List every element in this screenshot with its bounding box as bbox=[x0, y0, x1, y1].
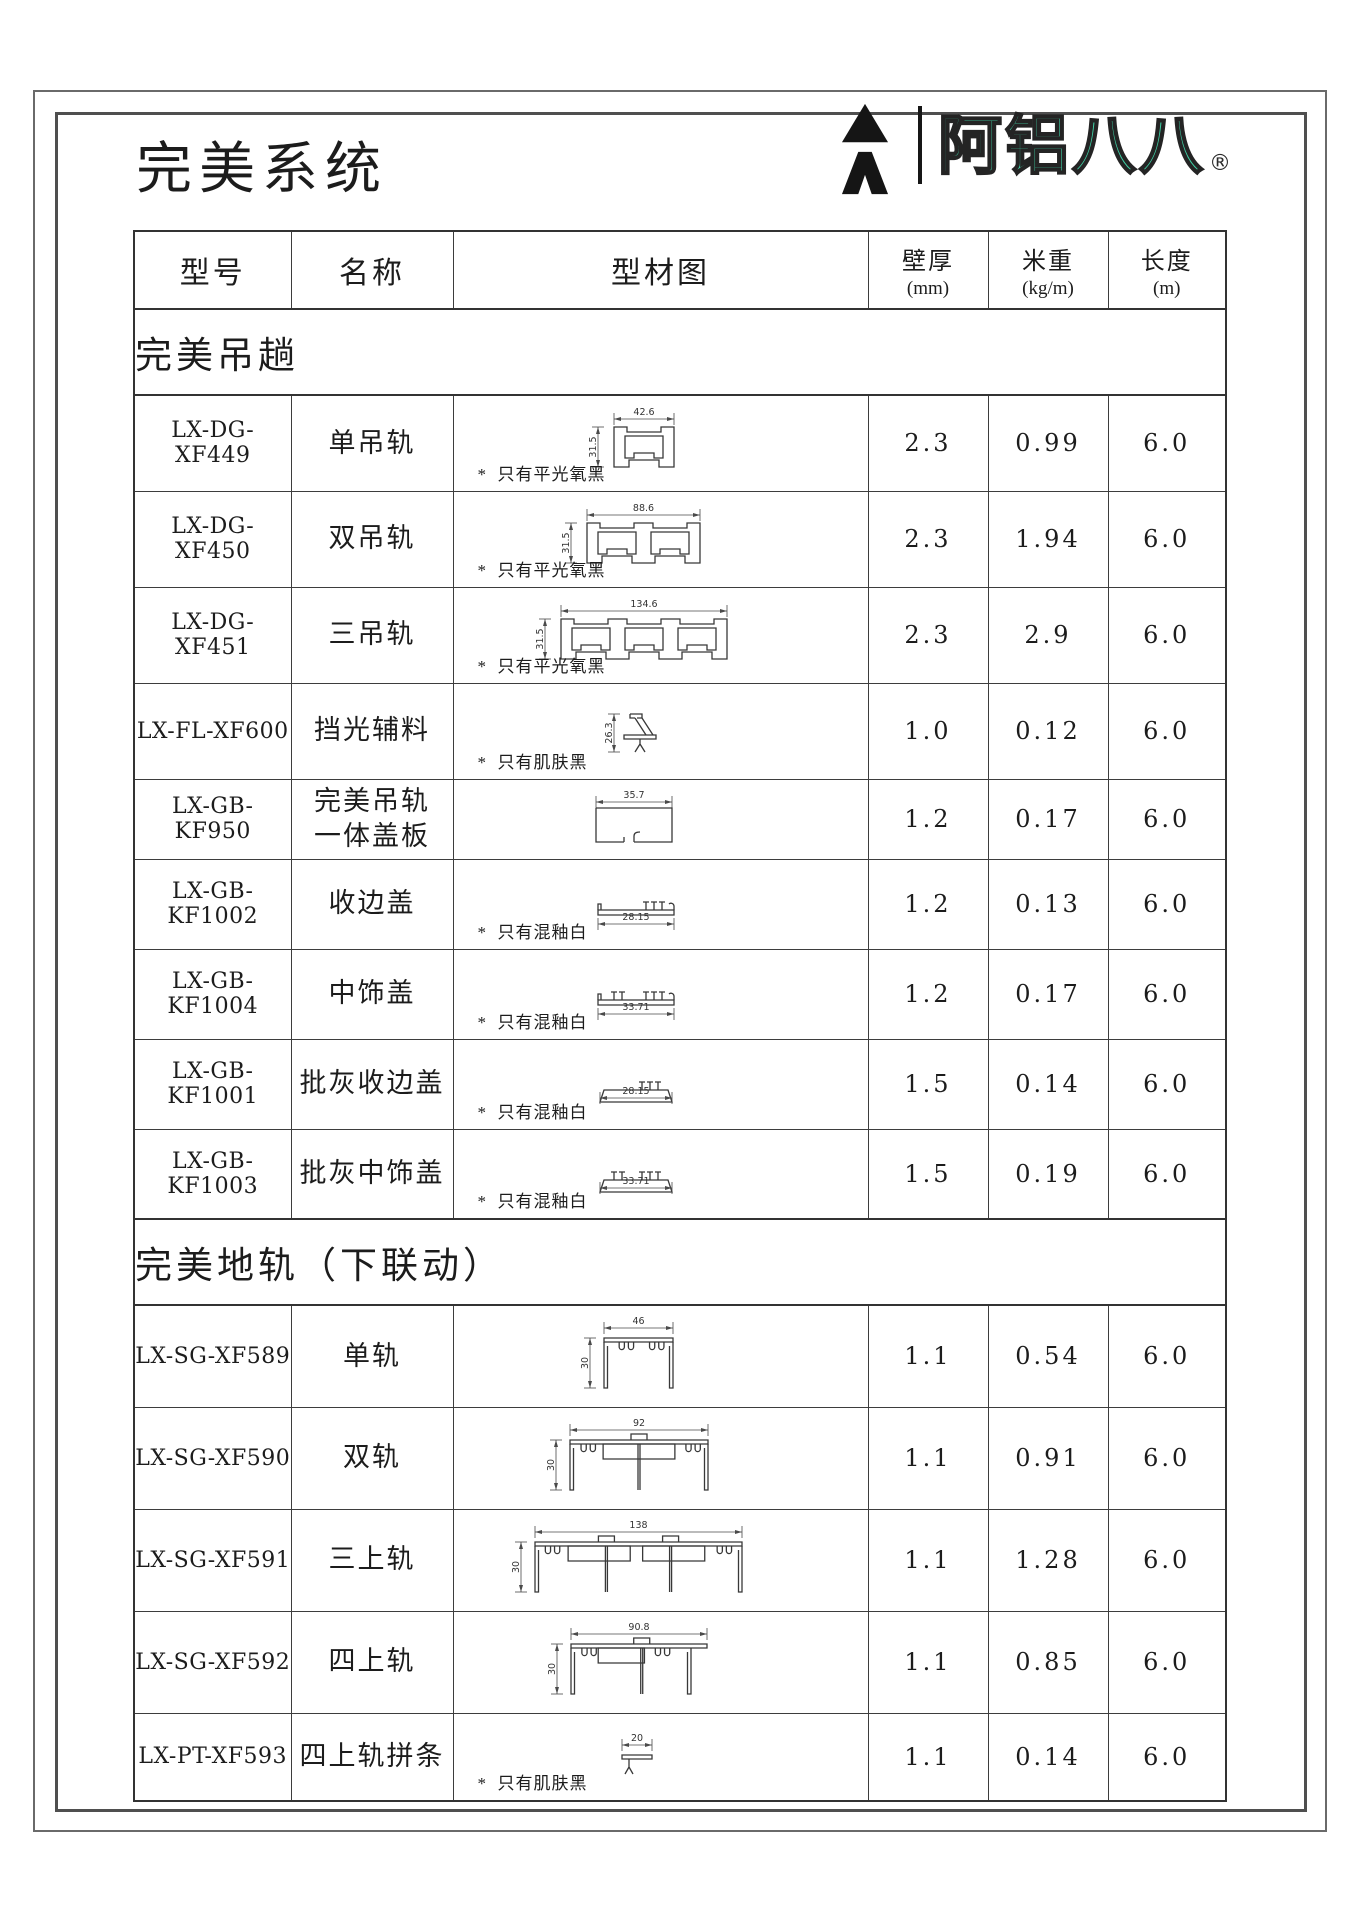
model-cell: LX-DG-XF451 bbox=[134, 587, 291, 683]
diagram-cell: 28.15* 只有混釉白 bbox=[453, 1039, 868, 1129]
weight-cell: 1.28 bbox=[988, 1509, 1108, 1611]
section-row: 完美吊趟 bbox=[134, 309, 1226, 395]
svg-text:30: 30 bbox=[546, 1459, 557, 1471]
length-cell: 6.0 bbox=[1108, 491, 1226, 587]
wall-cell: 1.2 bbox=[868, 949, 988, 1039]
model-cell: LX-GB-KF1001 bbox=[134, 1039, 291, 1129]
diagram-note: * 只有肌肤黑 bbox=[478, 748, 588, 773]
logo-brand: 阿铝八八 bbox=[938, 110, 1206, 182]
diagram-cell: 26.3* 只有肌肤黑 bbox=[453, 683, 868, 779]
model-cell: LX-PT-XF593 bbox=[134, 1713, 291, 1801]
svg-text:92: 92 bbox=[632, 1418, 644, 1429]
profile-diagram: 4630 bbox=[426, 1316, 840, 1396]
diagram-cell: 33.71* 只有混釉白 bbox=[453, 949, 868, 1039]
length-cell: 6.0 bbox=[1108, 1305, 1226, 1407]
length-cell: 6.0 bbox=[1108, 949, 1226, 1039]
wall-cell: 1.1 bbox=[868, 1305, 988, 1407]
length-cell: 6.0 bbox=[1108, 779, 1226, 859]
model-cell: LX-DG-XF449 bbox=[134, 395, 291, 491]
svg-text:42.6: 42.6 bbox=[633, 407, 654, 418]
wall-cell: 1.1 bbox=[868, 1509, 988, 1611]
table-row: LX-SG-XF591三上轨138301.11.286.0 bbox=[134, 1509, 1226, 1611]
model-cell: LX-SG-XF591 bbox=[134, 1509, 291, 1611]
spec-table: 型号 名称 型材图 壁厚(mm) 米重(kg/m) 长度(m) 完美吊趟LX-D… bbox=[133, 230, 1227, 1802]
svg-text:30: 30 bbox=[580, 1357, 591, 1369]
table-row: LX-FL-XF600挡光辅料26.3* 只有肌肤黑1.00.126.0 bbox=[134, 683, 1226, 779]
weight-cell: 0.54 bbox=[988, 1305, 1108, 1407]
col-header-model: 型号 bbox=[134, 231, 291, 309]
diagram-note: * 只有平光氧黑 bbox=[478, 460, 606, 485]
length-cell: 6.0 bbox=[1108, 1713, 1226, 1801]
diagram-cell: 88.631.5* 只有平光氧黑 bbox=[453, 491, 868, 587]
svg-text:20: 20 bbox=[630, 1733, 642, 1744]
model-cell: LX-DG-XF450 bbox=[134, 491, 291, 587]
svg-text:31.5: 31.5 bbox=[588, 437, 599, 458]
svg-text:31.5: 31.5 bbox=[561, 532, 572, 553]
weight-cell: 0.19 bbox=[988, 1129, 1108, 1219]
weight-cell: 0.13 bbox=[988, 859, 1108, 949]
model-cell: LX-GB-KF1002 bbox=[134, 859, 291, 949]
svg-text:28.15: 28.15 bbox=[622, 912, 649, 923]
length-cell: 6.0 bbox=[1108, 1611, 1226, 1713]
model-cell: LX-SG-XF589 bbox=[134, 1305, 291, 1407]
col-header-diagram: 型材图 bbox=[453, 231, 868, 309]
diagram-cell: 20* 只有肌肤黑 bbox=[453, 1713, 868, 1801]
wall-cell: 1.2 bbox=[868, 779, 988, 859]
diagram-note: * 只有混釉白 bbox=[478, 918, 588, 943]
length-cell: 6.0 bbox=[1108, 1509, 1226, 1611]
weight-cell: 0.17 bbox=[988, 949, 1108, 1039]
model-cell: LX-GB-KF950 bbox=[134, 779, 291, 859]
svg-text:30: 30 bbox=[511, 1561, 522, 1573]
diagram-cell: 35.7 bbox=[453, 779, 868, 859]
weight-cell: 0.99 bbox=[988, 395, 1108, 491]
svg-text:88.6: 88.6 bbox=[633, 503, 654, 514]
diagram-cell: 134.631.5* 只有平光氧黑 bbox=[453, 587, 868, 683]
logo-divider bbox=[918, 106, 922, 184]
svg-text:138: 138 bbox=[629, 1520, 647, 1531]
brand-logo: 阿铝八八® bbox=[826, 100, 1228, 196]
table-row: LX-SG-XF592四上轨90.8301.10.856.0 bbox=[134, 1611, 1226, 1713]
table-row: LX-GB-KF1002收边盖28.15* 只有混釉白1.20.136.0 bbox=[134, 859, 1226, 949]
length-cell: 6.0 bbox=[1108, 859, 1226, 949]
col-header-name: 名称 bbox=[291, 231, 453, 309]
table-row: LX-PT-XF593四上轨拼条20* 只有肌肤黑1.10.146.0 bbox=[134, 1713, 1226, 1801]
weight-cell: 0.17 bbox=[988, 779, 1108, 859]
wall-cell: 1.1 bbox=[868, 1611, 988, 1713]
diagram-cell: 28.15* 只有混釉白 bbox=[453, 859, 868, 949]
profile-diagram: 9230 bbox=[426, 1418, 840, 1498]
wall-cell: 1.1 bbox=[868, 1713, 988, 1801]
wall-cell: 1.1 bbox=[868, 1407, 988, 1509]
profile-diagram: 90.830 bbox=[426, 1622, 840, 1702]
length-cell: 6.0 bbox=[1108, 587, 1226, 683]
model-cell: LX-GB-KF1004 bbox=[134, 949, 291, 1039]
svg-text:90.8: 90.8 bbox=[628, 1622, 649, 1633]
wall-cell: 1.2 bbox=[868, 859, 988, 949]
svg-text:31.5: 31.5 bbox=[535, 628, 546, 649]
diagram-cell: 13830 bbox=[453, 1509, 868, 1611]
diagram-cell: 9230 bbox=[453, 1407, 868, 1509]
profile-diagram: 13830 bbox=[426, 1520, 840, 1600]
diagram-note: * 只有肌肤黑 bbox=[478, 1769, 588, 1794]
length-cell: 6.0 bbox=[1108, 1039, 1226, 1129]
weight-cell: 0.14 bbox=[988, 1039, 1108, 1129]
svg-text:46: 46 bbox=[632, 1316, 644, 1327]
table-header-row: 型号 名称 型材图 壁厚(mm) 米重(kg/m) 长度(m) bbox=[134, 231, 1226, 309]
diagram-note: * 只有混釉白 bbox=[478, 1098, 588, 1123]
svg-text:30: 30 bbox=[547, 1663, 558, 1675]
length-cell: 6.0 bbox=[1108, 1407, 1226, 1509]
wall-cell: 2.3 bbox=[868, 395, 988, 491]
diagram-cell: 4630 bbox=[453, 1305, 868, 1407]
table-row: LX-GB-KF950完美吊轨一体盖板35.71.20.176.0 bbox=[134, 779, 1226, 859]
weight-cell: 0.12 bbox=[988, 683, 1108, 779]
wall-cell: 1.0 bbox=[868, 683, 988, 779]
table-row: LX-DG-XF450双吊轨88.631.5* 只有平光氧黑2.31.946.0 bbox=[134, 491, 1226, 587]
length-cell: 6.0 bbox=[1108, 395, 1226, 491]
svg-text:26.3: 26.3 bbox=[604, 722, 615, 743]
table-row: LX-GB-KF1004中饰盖33.71* 只有混釉白1.20.176.0 bbox=[134, 949, 1226, 1039]
section-row: 完美地轨（下联动） bbox=[134, 1219, 1226, 1305]
registered-mark: ® bbox=[1209, 151, 1231, 176]
section-title: 完美地轨（下联动） bbox=[134, 1219, 1226, 1305]
table-row: LX-SG-XF589单轨46301.10.546.0 bbox=[134, 1305, 1226, 1407]
diagram-cell: 42.631.5* 只有平光氧黑 bbox=[453, 395, 868, 491]
weight-cell: 0.85 bbox=[988, 1611, 1108, 1713]
wall-cell: 1.5 bbox=[868, 1129, 988, 1219]
model-cell: LX-SG-XF592 bbox=[134, 1611, 291, 1713]
length-cell: 6.0 bbox=[1108, 1129, 1226, 1219]
table-row: LX-DG-XF451三吊轨134.631.5* 只有平光氧黑2.32.96.0 bbox=[134, 587, 1226, 683]
svg-text:33.71: 33.71 bbox=[622, 1002, 649, 1013]
logo-mark-icon bbox=[826, 100, 904, 196]
diagram-cell: 90.830 bbox=[453, 1611, 868, 1713]
svg-text:134.6: 134.6 bbox=[630, 599, 657, 610]
table-row: LX-GB-KF1003批灰中饰盖33.71* 只有混釉白1.50.196.0 bbox=[134, 1129, 1226, 1219]
diagram-note: * 只有平光氧黑 bbox=[478, 556, 606, 581]
wall-cell: 2.3 bbox=[868, 491, 988, 587]
page-title: 完美系统 bbox=[136, 124, 388, 205]
col-header-wall: 壁厚(mm) bbox=[868, 231, 988, 309]
weight-cell: 2.9 bbox=[988, 587, 1108, 683]
col-header-length: 长度(m) bbox=[1108, 231, 1226, 309]
table-row: LX-DG-XF449单吊轨42.631.5* 只有平光氧黑2.30.996.0 bbox=[134, 395, 1226, 491]
table-row: LX-GB-KF1001批灰收边盖28.15* 只有混釉白1.50.146.0 bbox=[134, 1039, 1226, 1129]
catalog-page: 完美系统 阿铝八八® 型号 名称 型材图 壁厚(mm) 米重(kg/m) bbox=[0, 0, 1357, 1920]
profile-diagram: 35.7 bbox=[426, 790, 840, 848]
table-row: LX-SG-XF590双轨92301.10.916.0 bbox=[134, 1407, 1226, 1509]
diagram-note: * 只有平光氧黑 bbox=[478, 652, 606, 677]
svg-text:33.71: 33.71 bbox=[622, 1176, 649, 1187]
svg-text:35.7: 35.7 bbox=[623, 790, 644, 801]
diagram-cell: 33.71* 只有混釉白 bbox=[453, 1129, 868, 1219]
section-title: 完美吊趟 bbox=[134, 309, 1226, 395]
col-header-weight: 米重(kg/m) bbox=[988, 231, 1108, 309]
model-cell: LX-GB-KF1003 bbox=[134, 1129, 291, 1219]
weight-cell: 0.14 bbox=[988, 1713, 1108, 1801]
length-cell: 6.0 bbox=[1108, 683, 1226, 779]
diagram-note: * 只有混釉白 bbox=[478, 1008, 588, 1033]
model-cell: LX-SG-XF590 bbox=[134, 1407, 291, 1509]
svg-text:28.15: 28.15 bbox=[622, 1086, 649, 1097]
diagram-note: * 只有混釉白 bbox=[478, 1187, 588, 1212]
wall-cell: 2.3 bbox=[868, 587, 988, 683]
weight-cell: 1.94 bbox=[988, 491, 1108, 587]
wall-cell: 1.5 bbox=[868, 1039, 988, 1129]
weight-cell: 0.91 bbox=[988, 1407, 1108, 1509]
model-cell: LX-FL-XF600 bbox=[134, 683, 291, 779]
